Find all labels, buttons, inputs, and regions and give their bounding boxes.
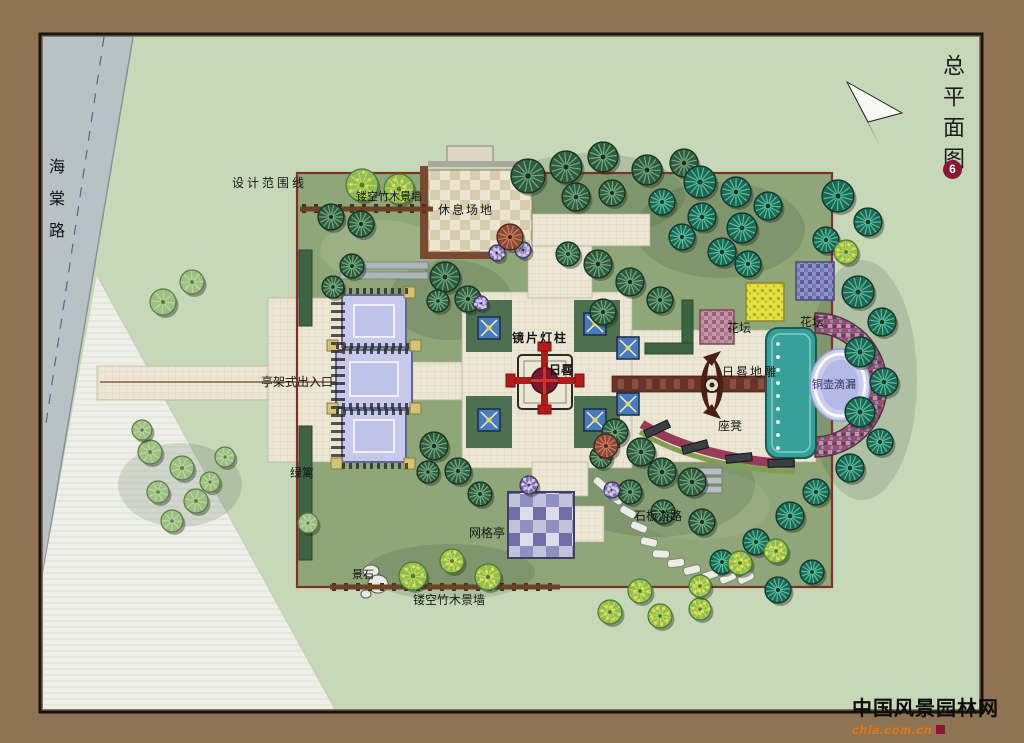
label-flower-bed-east: 花坛 [800,316,824,328]
label-sundial: 日晷 [549,364,573,376]
watermark-url: chla.com.cn [852,723,932,737]
sheet-number-badge: 6 [943,160,962,179]
label-rest-area: 休息场地 [438,204,494,216]
label-latticed-wall-bottom: 镂空竹木景墙 [413,594,485,606]
label-grid-pavilion: 网格亭 [469,527,505,539]
watermark-seal-icon [936,725,945,734]
watermark-site-name: 中国风景园林网 [852,692,1022,721]
label-mirror-lamp-column: 镜片灯柱 [512,332,568,344]
label-sundial-ground-relief: 日晷地雕 [722,366,778,378]
label-flower-bed-west: 花坛 [727,322,751,334]
label-bench-seat: 座凳 [718,420,742,432]
label-copper-clepsydra: 铜壶滴漏 [812,380,856,391]
label-pergola-entrance: 亭架式出入口 [261,376,333,388]
label-latticed-wall-top: 镂空竹木景墙 [356,192,422,203]
label-stone-slab-path: 石板游路 [634,510,682,522]
label-design-boundary: 设计范围线 [232,177,307,189]
master-plan-sheet: 海棠路 设计范围线 镂空竹木景墙 休息场地 镜片灯柱 日晷 花坛 花坛 日晷地雕… [0,0,1024,743]
plan-canvas [0,0,1024,743]
entrance-pools [327,287,421,469]
grid-pavilion-structure [508,492,574,558]
label-road-haitang: 海棠路 [46,158,62,254]
label-landscape-stone: 景石 [352,570,374,581]
watermark: 中国风景园林网 chla.com.cn [852,692,1022,739]
label-hedge: 绿篱 [290,467,314,479]
